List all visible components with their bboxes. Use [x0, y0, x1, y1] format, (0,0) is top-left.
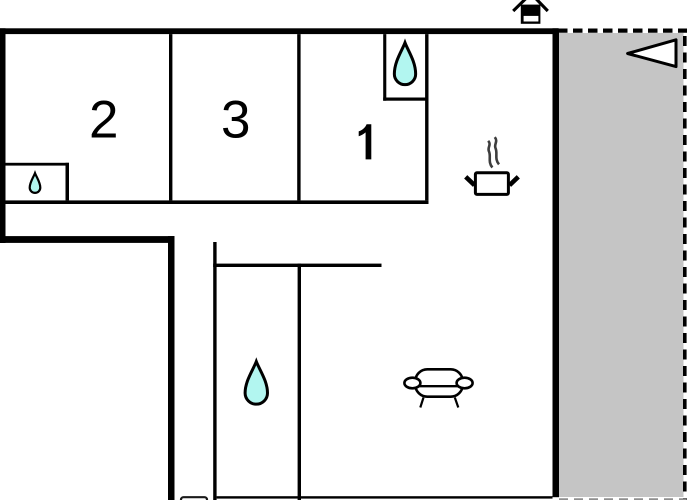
svg-text:2: 2: [89, 90, 118, 149]
svg-text:3: 3: [221, 91, 250, 150]
